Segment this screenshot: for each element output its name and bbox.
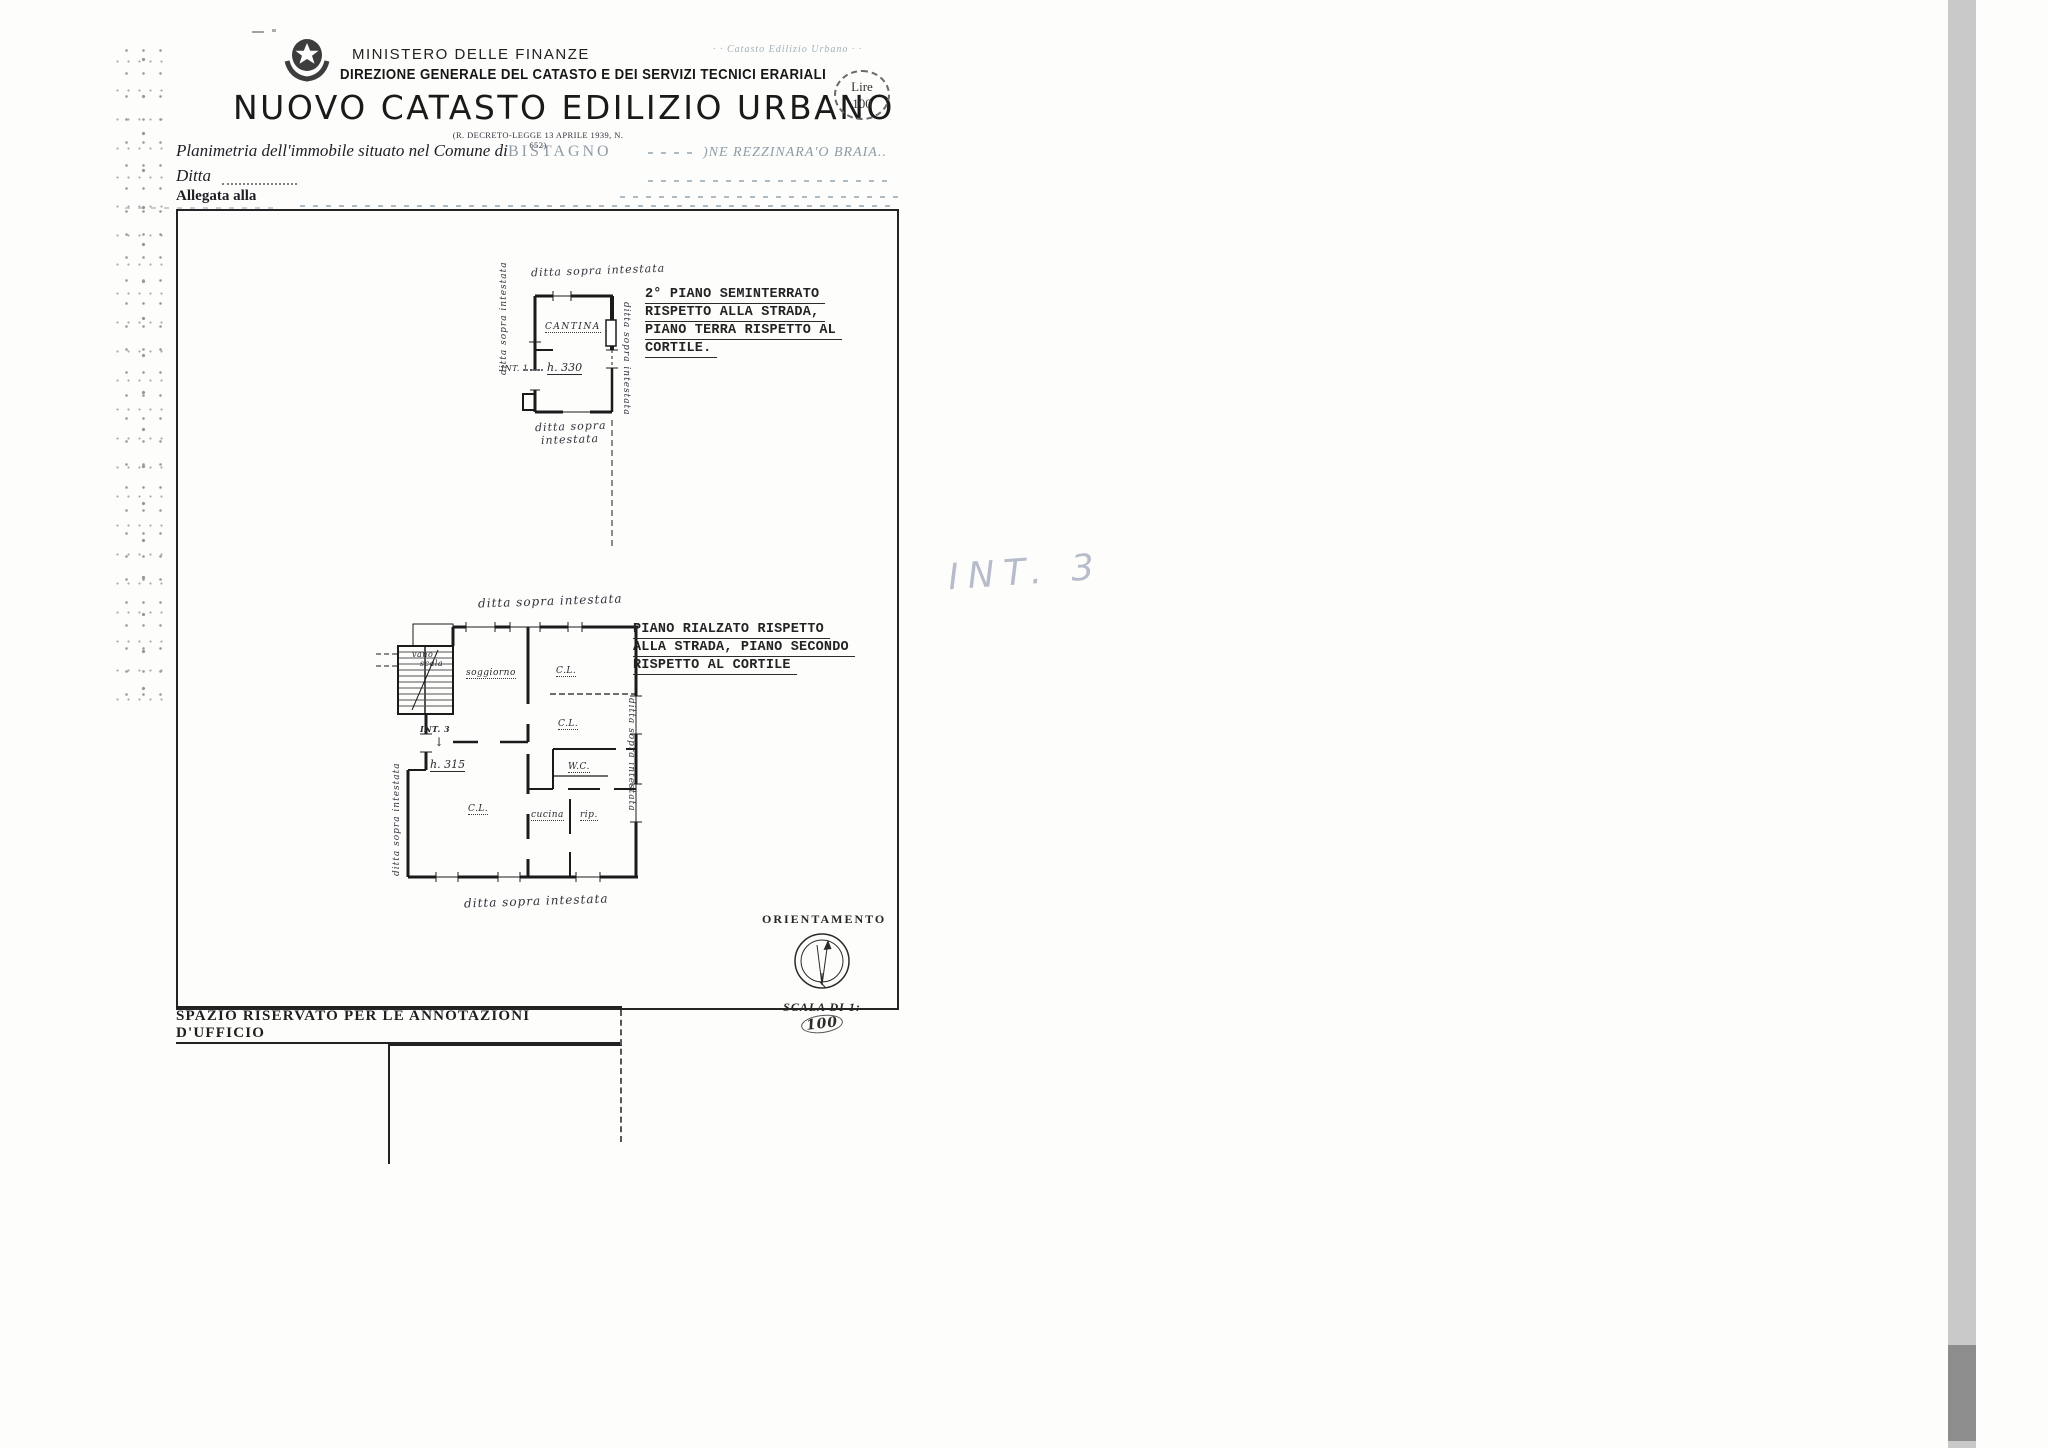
lower-plan-caption: PIANO RIALZATO RISPETTO ALLA STRADA, PIA… <box>633 621 855 675</box>
locality-note: )NE REZZINARA'O BRAIA.. <box>703 145 887 161</box>
directorate-line: DIREZIONE GENERALE DEL CATASTO E DEI SER… <box>340 66 826 83</box>
scanner-edge-strip <box>1948 0 1976 1448</box>
box-right-edge <box>620 1010 622 1142</box>
orientation-title: ORIENTAMENTO <box>762 912 882 927</box>
scanned-cadastral-document: MINISTERO DELLE FINANZE DIREZIONE GENERA… <box>0 0 2048 1448</box>
room-label-cucina: cucina <box>531 810 564 821</box>
stamp-currency: Lire <box>836 79 888 96</box>
room-label-cl-top: C.L. <box>556 666 576 677</box>
upper-floor-plan-drawing <box>495 262 655 562</box>
scale-label: SCALA DI 1: 100 <box>762 1000 882 1033</box>
room-label-rip: rip. <box>580 810 598 821</box>
caption-line: PIANO RIALZATO RISPETTO <box>633 621 830 639</box>
column-divider <box>388 1046 390 1164</box>
caption-line: RISPETTO ALLA STRADA, <box>645 304 825 322</box>
caption-line: RISPETTO AL CORTILE <box>633 657 797 675</box>
boundary-note-left: ditta sopra intestata <box>392 754 402 876</box>
state-emblem-icon <box>280 36 334 87</box>
lire-stamp: Lire 100 <box>834 70 890 120</box>
faint-ruled-line <box>300 205 892 207</box>
room-label-cl-mid: C.L. <box>558 719 578 730</box>
entrance-arrow: ↓ <box>434 735 445 749</box>
upper-plan-caption: 2° PIANO SEMINTERRATO RISPETTO ALLA STRA… <box>645 286 842 358</box>
scan-noise-band <box>116 36 168 706</box>
scale-prefix: SCALA DI 1: <box>783 1000 861 1014</box>
caption-line: 2° PIANO SEMINTERRATO <box>645 286 825 304</box>
pencil-interno-note: INT. 3 <box>947 547 1105 599</box>
room-label-vano: vano <box>412 650 433 659</box>
ditta-label: Ditta <box>176 166 211 186</box>
caption-line: PIANO TERRA RISPETTO AL <box>645 322 842 340</box>
boundary-note-bottom-2: intestata <box>541 432 600 447</box>
room-label-scala: scala <box>420 659 443 668</box>
lower-floor-plan-drawing <box>368 594 648 924</box>
room-label-cl-bottom: C.L. <box>468 804 488 815</box>
document-title: NUOVO CATASTO EDILIZIO URBANO <box>233 88 895 127</box>
boundary-note-right: ditta sopra intestata <box>626 698 636 833</box>
room-label-wc: W.C. <box>568 762 590 773</box>
upper-floor-plan: ditta sopra intestata ditta sopra intest… <box>495 262 655 562</box>
office-annotations-box: SPAZIO RISERVATO PER LE ANNOTAZIONI D'UF… <box>176 1006 622 1166</box>
double-rule <box>388 1044 622 1046</box>
lower-floor-plan: ditta sopra intestata ditta sopra intest… <box>368 594 648 924</box>
height-label: h. 330 <box>547 361 582 375</box>
interno-label: INT. 3 <box>420 724 450 734</box>
orientation-block: ORIENTAMENTO SCALA DI 1: 100 <box>762 912 882 1033</box>
office-annotations-title: SPAZIO RISERVATO PER LE ANNOTAZIONI D'UF… <box>176 1008 622 1042</box>
dotted-leader <box>523 359 543 371</box>
caption-line: CORTILE. <box>645 340 717 358</box>
scanner-edge-dark-mark <box>1948 1345 1976 1441</box>
scan-noise-mark <box>252 31 264 33</box>
room-label-soggiorno: soggiorno <box>466 668 516 679</box>
faint-ruled-line <box>648 152 698 154</box>
compass-icon <box>790 929 854 993</box>
boundary-note-left: ditta sopra intestata <box>499 290 509 375</box>
ditta-fill-line <box>222 170 297 185</box>
caption-line: ALLA STRADA, PIANO SECONDO <box>633 639 855 657</box>
planimetria-label: Planimetria dell'immobile situato nel Co… <box>176 141 508 161</box>
faint-ruled-line <box>620 196 900 198</box>
office-annotations-header: SPAZIO RISERVATO PER LE ANNOTAZIONI D'UF… <box>176 1006 622 1044</box>
room-label-cantina: CANTINA <box>545 322 601 333</box>
faint-ruled-line <box>648 180 888 182</box>
scan-noise-mark <box>272 29 276 32</box>
faint-corner-note: · · Catasto Edilizio Urbano · · <box>713 44 862 55</box>
height-label: h. 315 <box>430 758 465 772</box>
boundary-note-right: ditta sopra intestata <box>621 302 631 437</box>
scale-value: 100 <box>800 1012 844 1035</box>
ministry-line: MINISTERO DELLE FINANZE <box>352 46 590 63</box>
comune-value: BISTAGNO <box>508 143 612 161</box>
allegata-label: Allegata alla <box>176 188 256 205</box>
stamp-amount: 100 <box>836 96 888 113</box>
